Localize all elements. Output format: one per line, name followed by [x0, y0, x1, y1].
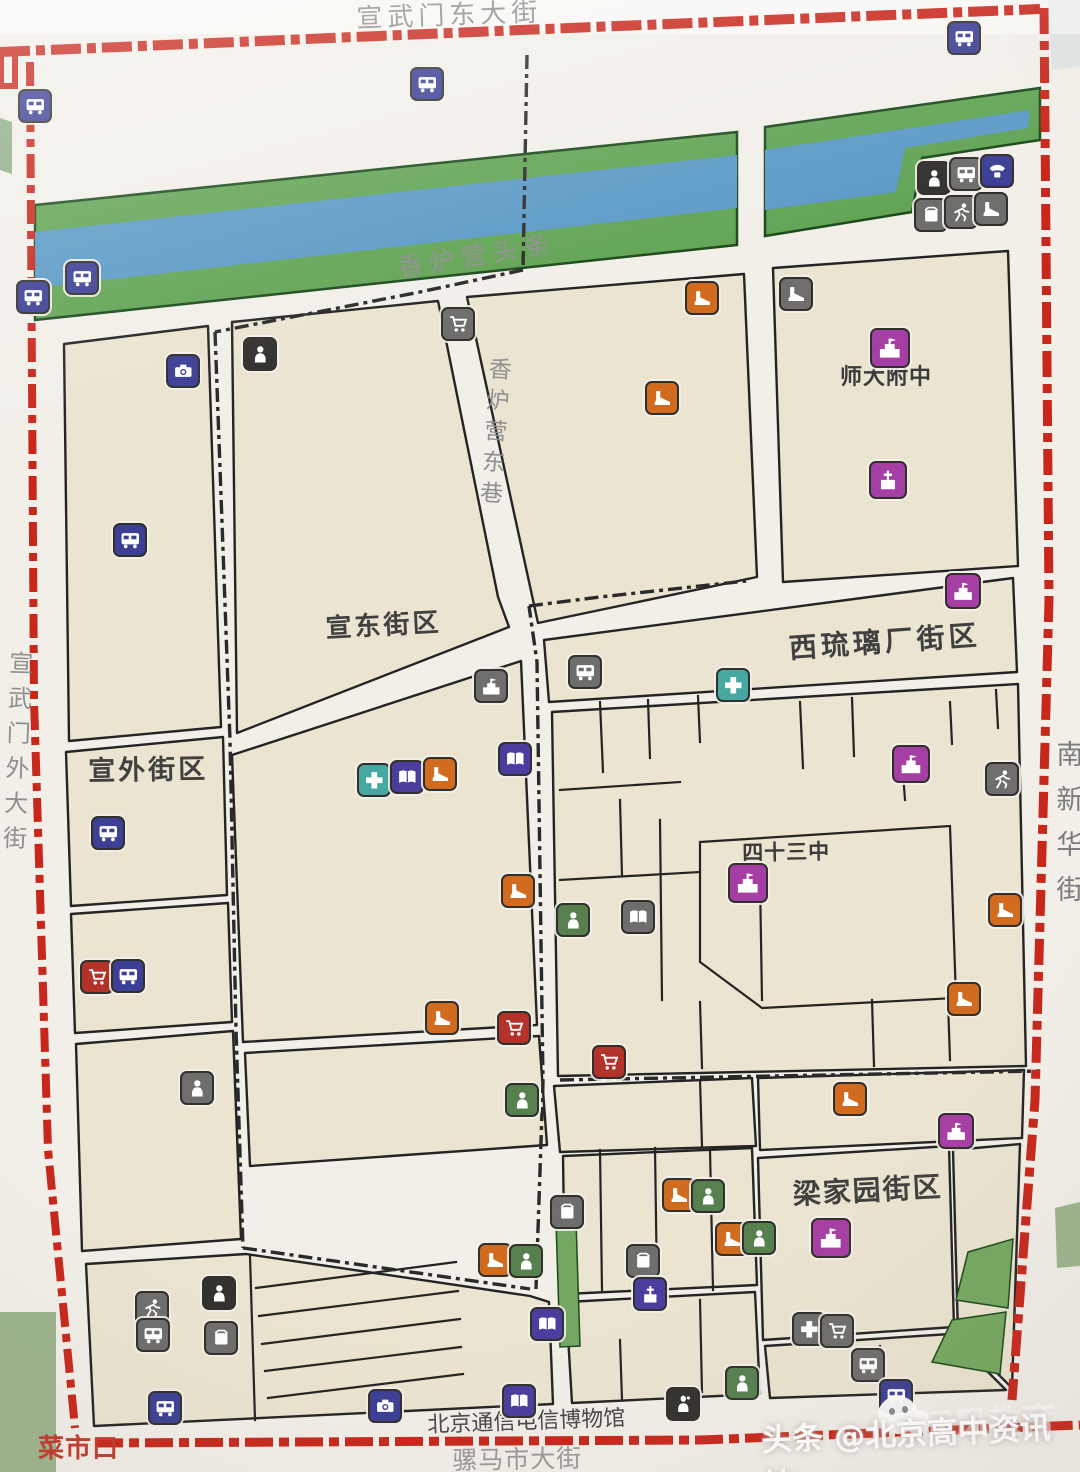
- map-photo: 宣武门东大街宣武门外大街南新华街骡马市大街香炉营头条香炉营东巷菜市口北京通信电信…: [0, 0, 1080, 1472]
- school-icon: [945, 573, 981, 609]
- bus-icon: [851, 1348, 885, 1382]
- shoe-icon: [833, 1082, 867, 1116]
- caishikou-label: 菜市口: [38, 1436, 119, 1463]
- person-icon: [202, 1276, 236, 1310]
- box-icon: [550, 1195, 584, 1229]
- school-icon: [938, 1113, 974, 1149]
- cart-icon: [820, 1314, 854, 1348]
- shoe-icon: [423, 757, 457, 791]
- church-icon: [633, 1277, 667, 1311]
- luomashi-street-label: 骡马市大街: [452, 1446, 582, 1472]
- bus-icon: [148, 1391, 182, 1425]
- shida-fuzhong-label: 师大附中: [840, 366, 932, 389]
- person-icon: [509, 1244, 543, 1278]
- school-icon: [870, 328, 910, 368]
- person-icon: [180, 1071, 214, 1105]
- city-blocks: [64, 251, 1026, 1426]
- box-icon: [626, 1244, 660, 1278]
- person-icon: [505, 1083, 539, 1117]
- person-icon: [556, 903, 590, 937]
- school-icon: [892, 745, 930, 783]
- shoe-icon: [425, 1001, 459, 1035]
- police-icon: [666, 1387, 700, 1421]
- school-icon: [728, 863, 768, 903]
- runner-icon: [944, 195, 978, 229]
- nanxinhua-street-label: 南新华街: [1052, 740, 1080, 920]
- camera-icon: [368, 1389, 402, 1423]
- cross-icon: [357, 763, 391, 797]
- xuanwai-block-label: 宣外街区: [88, 756, 208, 786]
- cart-icon: [441, 307, 475, 341]
- bus-icon: [949, 157, 983, 191]
- bus-icon: [91, 816, 125, 850]
- camera-icon: [166, 354, 200, 388]
- bus-icon: [947, 21, 981, 55]
- phone-icon: [980, 154, 1014, 188]
- person-icon: [742, 1221, 776, 1255]
- book-icon: [621, 900, 655, 934]
- shoe-icon: [685, 281, 719, 315]
- bus-icon: [879, 1379, 913, 1413]
- shoe-icon: [478, 1243, 512, 1277]
- person-icon: [691, 1179, 725, 1213]
- liangjiayuan-block-label: 梁家园街区: [792, 1172, 943, 1209]
- person-icon: [243, 337, 277, 371]
- shoe-icon: [947, 982, 981, 1016]
- cart-icon: [497, 1011, 531, 1045]
- book-icon: [390, 760, 424, 794]
- person-icon: [725, 1366, 759, 1400]
- bus-icon: [136, 1318, 170, 1352]
- box-icon: [204, 1321, 238, 1355]
- xuanwumen-east-street-label: 宣武门东大街: [356, 0, 543, 33]
- bus-icon: [111, 959, 145, 993]
- xuandong-block-label: 宣东街区: [325, 610, 442, 643]
- shoe-icon: [779, 277, 813, 311]
- shoe-icon: [645, 381, 679, 415]
- sishisan-zhong-label: 四十三中: [742, 840, 830, 864]
- cart-icon: [592, 1045, 626, 1079]
- bus-icon: [410, 67, 444, 101]
- xuanwumen-outer-street-label: 宣武门外大街: [0, 650, 31, 861]
- book-icon: [530, 1307, 564, 1341]
- box-icon: [914, 198, 948, 232]
- church-icon: [869, 461, 907, 499]
- shoe-icon: [988, 893, 1022, 927]
- bus-icon: [568, 655, 602, 689]
- runner-icon: [985, 762, 1019, 796]
- school-icon: [811, 1218, 851, 1258]
- school-icon: [474, 669, 508, 703]
- bus-icon: [65, 261, 99, 295]
- bus-icon: [18, 89, 52, 123]
- shoe-icon: [501, 874, 535, 908]
- bus-icon: [113, 523, 147, 557]
- person-icon: [917, 161, 951, 195]
- shoe-icon: [974, 192, 1008, 226]
- cart-icon: [80, 960, 114, 994]
- book-icon: [502, 1384, 536, 1418]
- cross-icon: [716, 668, 750, 702]
- book-icon: [498, 742, 532, 776]
- bus-icon: [16, 280, 50, 314]
